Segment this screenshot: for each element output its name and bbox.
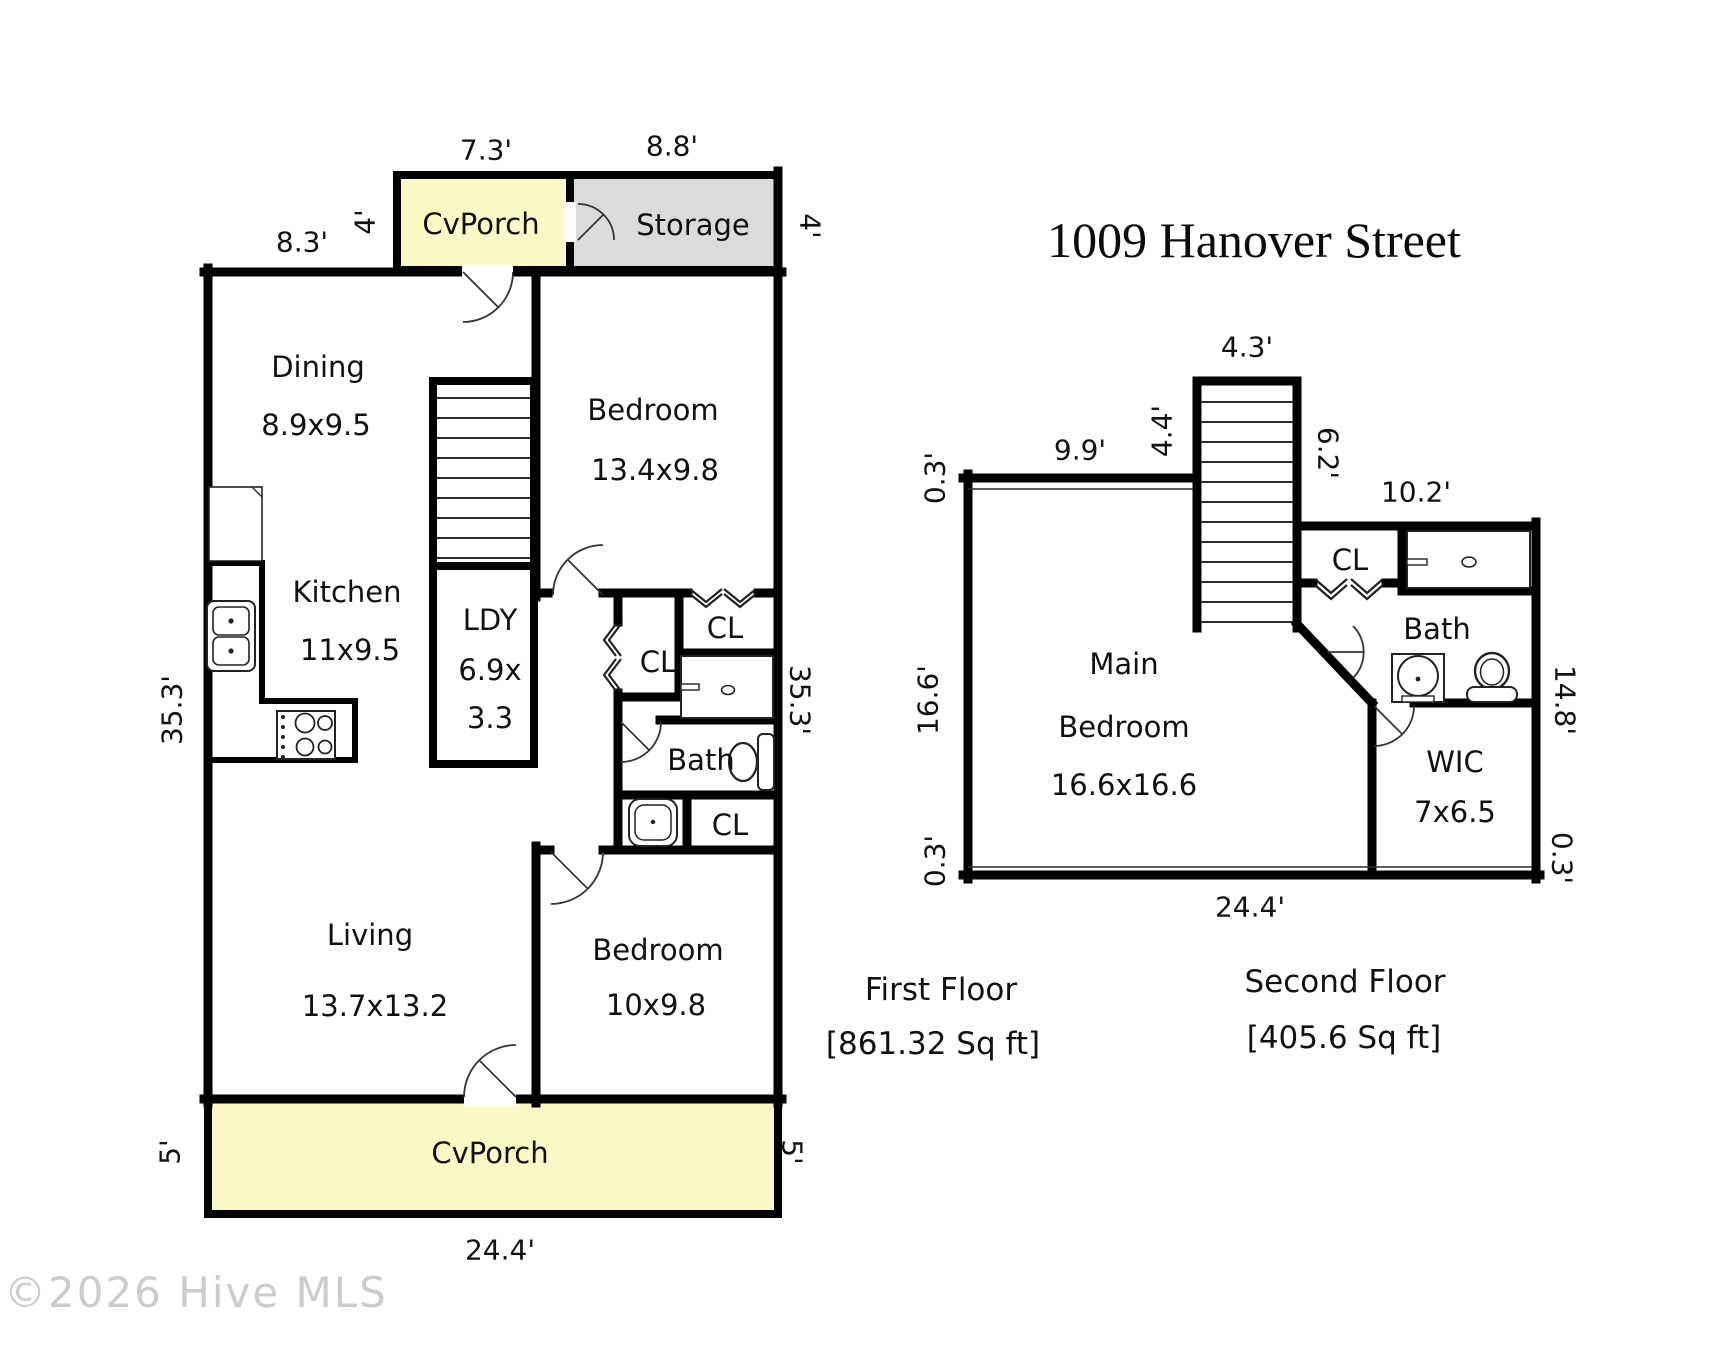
first-floor-stair-treads (437, 398, 530, 558)
label-closet-bottom: CL (712, 808, 748, 842)
dim2-left-height: 16.6' (912, 665, 945, 735)
label-bedroom1-size: 13.4x9.8 (591, 453, 719, 487)
label-kitchen: Kitchen (293, 575, 402, 609)
hall-vanity-icon (681, 656, 773, 718)
wic-door-icon (1374, 706, 1414, 746)
dim-top-storage: 8.8' (646, 130, 698, 163)
bath-vanity-icon (1407, 531, 1530, 588)
label-kitchen-size: 11x9.5 (300, 633, 400, 667)
dim-bottom-width: 24.4' (465, 1234, 535, 1267)
floorplan-canvas: 7.3' 8.8' 8.3' 4' 4' 35.3' 35.3' 5' 5' 2… (0, 0, 1732, 1356)
refrigerator-icon (209, 487, 262, 561)
dim2-stairs-top: 4.3' (1221, 331, 1273, 364)
closet-bifold-icon (1315, 579, 1383, 599)
dim2-right-height: 14.8' (1549, 665, 1582, 735)
first-floor-area: [861.32 Sq ft] (826, 1026, 1040, 1062)
dim2-offset-bottom-left: 0.3' (919, 835, 952, 887)
toilet-icon (729, 734, 774, 790)
back-door-icon (464, 1045, 516, 1097)
label2-main-bedroom-size: 16.6x16.6 (1051, 768, 1197, 802)
dim2-left-top: 9.9' (1054, 434, 1106, 467)
bath-door-icon (621, 722, 661, 762)
label-dining-size: 8.9x9.5 (261, 408, 370, 442)
dim-right-height: 35.3' (784, 665, 817, 735)
second-floor-stair-treads (1201, 402, 1293, 622)
label-cvporch-top: CvPorch (422, 207, 539, 241)
dim-porch-side-left: 4' (349, 209, 382, 235)
dim-top-porch: 7.3' (460, 134, 512, 167)
second-floor-stairs-box (1197, 381, 1297, 628)
bedroom1-door-icon (553, 545, 603, 595)
back-door-opening (464, 1092, 516, 1106)
bedroom2-door-icon (551, 852, 603, 904)
second-floor-plan: 4.3' 9.9' 4.4' 0.3' 6.2' 10.2' 16.6' 0.3… (912, 331, 1582, 1057)
dim2-stairs-left: 4.4' (1146, 405, 1179, 457)
second-floor-area: [405.6 Sq ft] (1247, 1020, 1442, 1056)
dim-top-left: 8.3' (276, 226, 328, 259)
dim2-bottom-width: 24.4' (1215, 891, 1285, 924)
label-laundry: LDY (463, 603, 518, 637)
dim2-stairs-right: 6.2' (1312, 427, 1345, 479)
label-bedroom1: Bedroom (587, 393, 718, 427)
label-living: Living (327, 918, 413, 952)
label-dining: Dining (271, 350, 365, 384)
label-closet-mid: CL (640, 645, 676, 679)
closet-top-bifold-icon (690, 589, 756, 607)
label2-main-bedroom-line1: Main (1089, 647, 1158, 681)
dim2-top-right: 10.2' (1381, 476, 1451, 509)
toilet2-icon (1467, 653, 1517, 702)
label-bath: Bath (667, 743, 734, 777)
label2-wic-size: 7x6.5 (1414, 795, 1496, 829)
front-door-opening (462, 265, 513, 279)
label-bedroom2-size: 10x9.8 (606, 988, 706, 1022)
mls-watermark: ©2026 Hive MLS (4, 1268, 388, 1317)
dim-left-height: 35.3' (156, 675, 189, 745)
dim-storage-side-right: 4' (794, 213, 827, 239)
label2-main-bedroom-line2: Bedroom (1058, 710, 1189, 744)
dim-porch-left: 5' (154, 1139, 187, 1165)
label-laundry-size1: 6.9x (458, 653, 521, 687)
pedestal-sink-icon (1392, 654, 1444, 702)
dim2-offset-bottom-right: 0.3' (1546, 832, 1579, 884)
label-storage: Storage (636, 208, 749, 242)
label-closet-top: CL (707, 611, 743, 645)
label-living-size: 13.7x13.2 (302, 989, 448, 1023)
closet-mid-bifold-icon (604, 624, 621, 691)
page-title: 1009 Hanover Street (1047, 212, 1461, 268)
label2-closet: CL (1332, 543, 1368, 577)
storage-door-opening (564, 202, 576, 242)
second-floor-caption: Second Floor (1244, 964, 1445, 1000)
label-bedroom2: Bedroom (592, 933, 723, 967)
dim2-offset-top-left: 0.3' (919, 452, 952, 504)
label-cvporch-bottom: CvPorch (431, 1136, 548, 1170)
stove-icon (277, 711, 335, 759)
dim-porch-right: 5' (776, 1139, 809, 1165)
first-floor-caption: First Floor (865, 972, 1017, 1008)
label-laundry-size2: 3.3 (467, 701, 513, 735)
label2-bath: Bath (1403, 612, 1470, 646)
first-floor-plan: 7.3' 8.8' 8.3' 4' 4' 35.3' 35.3' 5' 5' 2… (154, 130, 1041, 1267)
floorplan-page: 7.3' 8.8' 8.3' 4' 4' 35.3' 35.3' 5' 5' 2… (0, 0, 1732, 1356)
bath-sink-icon (629, 799, 677, 846)
label2-wic: WIC (1426, 745, 1483, 779)
kitchen-sink-icon (207, 601, 255, 671)
front-door-icon (463, 272, 513, 322)
